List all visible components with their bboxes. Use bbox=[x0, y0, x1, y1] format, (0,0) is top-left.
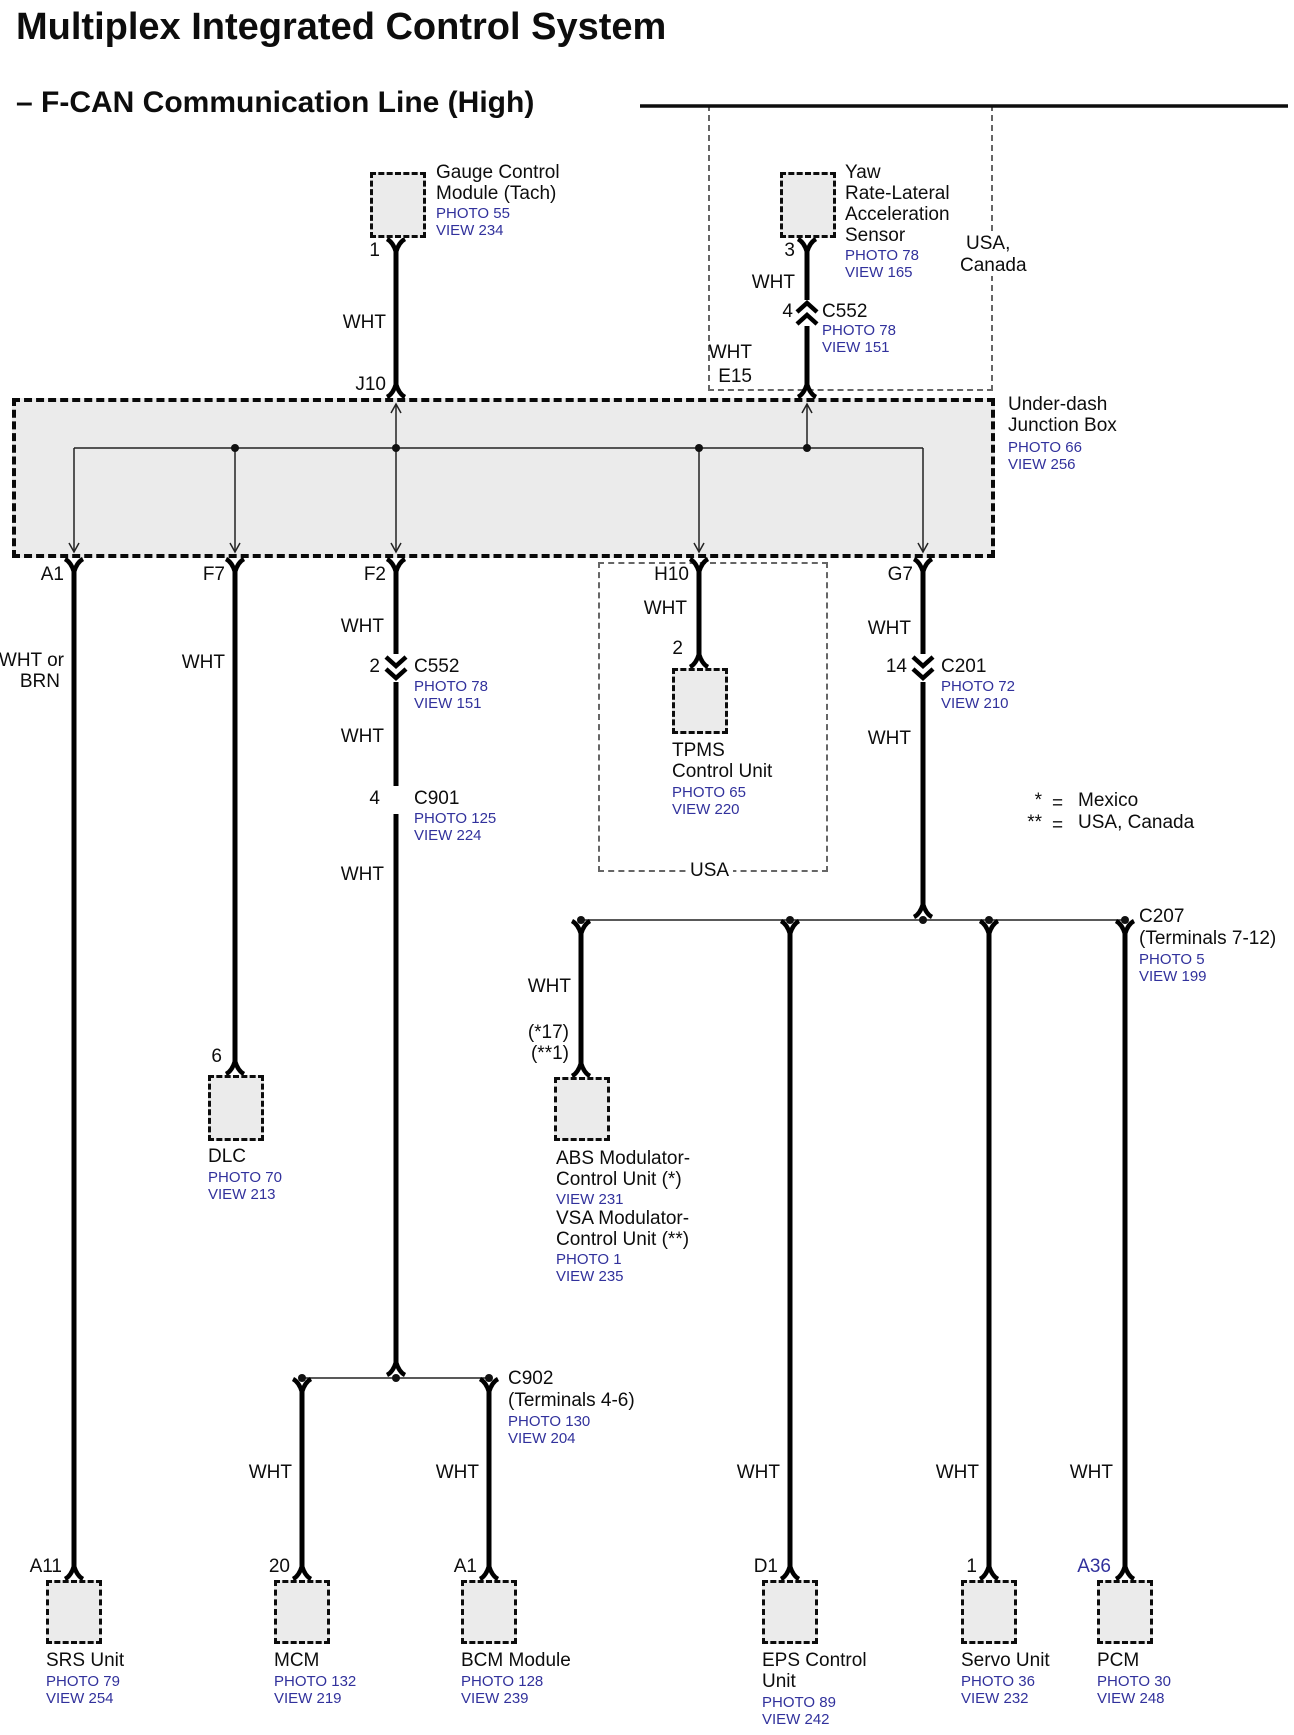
tpms-name-line1: TPMS bbox=[672, 740, 725, 761]
junction-internal-bus bbox=[74, 404, 923, 552]
yaw-name-line4: Sensor bbox=[845, 225, 905, 246]
gauge-photo-link[interactable]: PHOTO 55 bbox=[436, 206, 510, 222]
yaw-c552-pin: 4 bbox=[782, 301, 793, 322]
pcm-name: PCM bbox=[1097, 1650, 1139, 1671]
yaw-region-label-line2: Canada bbox=[956, 255, 1031, 276]
eps-wire-color: WHT bbox=[737, 1462, 780, 1483]
yaw-c552-name: C552 bbox=[822, 301, 867, 322]
tpms-wire-color: WHT bbox=[644, 598, 687, 619]
f2-c901-view-link[interactable]: VIEW 224 bbox=[414, 828, 482, 844]
servo-view-link[interactable]: VIEW 232 bbox=[961, 1691, 1029, 1707]
abs-wire-color: WHT bbox=[528, 976, 571, 997]
vsa-view-link[interactable]: VIEW 235 bbox=[556, 1269, 624, 1285]
f2-c552-pin: 2 bbox=[369, 656, 380, 677]
eps-control-unit-box bbox=[762, 1580, 818, 1644]
mcm-photo-link[interactable]: PHOTO 132 bbox=[274, 1674, 356, 1690]
srs-wire-color-line1: WHT or bbox=[0, 650, 64, 671]
tpms-control-unit-box bbox=[672, 668, 728, 734]
yaw-c552-view-link[interactable]: VIEW 151 bbox=[822, 340, 890, 356]
bcm-photo-link[interactable]: PHOTO 128 bbox=[461, 1674, 543, 1690]
yaw-photo-link[interactable]: PHOTO 78 bbox=[845, 248, 919, 264]
junction-pin-g7: G7 bbox=[888, 564, 913, 585]
tpms-name-line2: Control Unit bbox=[672, 761, 772, 782]
junction-pin-h10: H10 bbox=[654, 564, 689, 585]
eps-name-line2: Unit bbox=[762, 1671, 796, 1692]
abs-vsa-modulator-box bbox=[554, 1077, 610, 1141]
c207-terminals: (Terminals 7-12) bbox=[1139, 928, 1276, 949]
gauge-control-module-box bbox=[370, 172, 426, 238]
mcm-wire-color: WHT bbox=[249, 1462, 292, 1483]
servo-wire-color: WHT bbox=[936, 1462, 979, 1483]
legend-doublestar-value: USA, Canada bbox=[1078, 812, 1194, 833]
abs-pin-mexico: (*17) bbox=[528, 1022, 569, 1043]
legend-star: * bbox=[1035, 790, 1042, 811]
servo-pin: 1 bbox=[966, 1556, 977, 1577]
srs-name: SRS Unit bbox=[46, 1650, 124, 1671]
junction-box-name-line1: Under-dash bbox=[1008, 394, 1107, 415]
yaw-name-line2: Rate-Lateral bbox=[845, 183, 950, 204]
dlc-pin: 6 bbox=[211, 1046, 222, 1067]
tpms-view-link[interactable]: VIEW 220 bbox=[672, 802, 740, 818]
gauge-pin: 1 bbox=[369, 240, 380, 261]
yaw-rate-sensor-box bbox=[780, 172, 836, 238]
usa-region-label: USA bbox=[686, 860, 733, 881]
c207-bus bbox=[577, 916, 1129, 924]
junction-pin-j10: J10 bbox=[355, 374, 386, 395]
srs-photo-link[interactable]: PHOTO 79 bbox=[46, 1674, 120, 1690]
tpms-photo-link[interactable]: PHOTO 65 bbox=[672, 785, 746, 801]
f2-c552-view-link[interactable]: VIEW 151 bbox=[414, 696, 482, 712]
junction-pin-a1: A1 bbox=[41, 564, 64, 585]
junction-pin-e15: E15 bbox=[718, 366, 752, 387]
srs-pin: A11 bbox=[30, 1556, 62, 1577]
srs-unit-box bbox=[46, 1580, 102, 1644]
f2-wire3-color: WHT bbox=[341, 864, 384, 885]
g7-wire2-color: WHT bbox=[868, 728, 911, 749]
bcm-wire-color: WHT bbox=[436, 1462, 479, 1483]
f2-c901-name: C901 bbox=[414, 788, 459, 809]
g7-c201-name: C201 bbox=[941, 656, 986, 677]
f2-c552-name: C552 bbox=[414, 656, 459, 677]
abs-view-link[interactable]: VIEW 231 bbox=[556, 1192, 624, 1208]
c902-bus bbox=[298, 1374, 493, 1382]
f2-wire1-color: WHT bbox=[341, 616, 384, 637]
eps-pin: D1 bbox=[754, 1556, 778, 1577]
inline-connectors bbox=[386, 303, 933, 678]
c902-photo-link[interactable]: PHOTO 130 bbox=[508, 1414, 590, 1430]
yaw-pin: 3 bbox=[784, 240, 795, 261]
dlc-view-link[interactable]: VIEW 213 bbox=[208, 1187, 276, 1203]
bcm-pin: A1 bbox=[454, 1556, 477, 1577]
junction-box-name-line2: Junction Box bbox=[1008, 415, 1117, 436]
mcm-box bbox=[274, 1580, 330, 1644]
abs-name-line1: ABS Modulator- bbox=[556, 1148, 690, 1169]
servo-photo-link[interactable]: PHOTO 36 bbox=[961, 1674, 1035, 1690]
junction-internal-arrows bbox=[69, 404, 928, 552]
mcm-pin: 20 bbox=[269, 1556, 290, 1577]
c902-terminals: (Terminals 4-6) bbox=[508, 1390, 635, 1411]
pcm-view-link[interactable]: VIEW 248 bbox=[1097, 1691, 1165, 1707]
pcm-pin-link[interactable]: A36 bbox=[1077, 1556, 1111, 1577]
mcm-name: MCM bbox=[274, 1650, 319, 1671]
dlc-photo-link[interactable]: PHOTO 70 bbox=[208, 1170, 282, 1186]
gauge-view-link[interactable]: VIEW 234 bbox=[436, 223, 504, 239]
gauge-name-line2: Module (Tach) bbox=[436, 183, 556, 204]
yaw-name-line3: Acceleration bbox=[845, 204, 950, 225]
bcm-module-box bbox=[461, 1580, 517, 1644]
yaw-region-label-line1: USA, bbox=[962, 233, 1014, 254]
f2-c901-pin: 4 bbox=[369, 788, 380, 809]
dlc-wire-color: WHT bbox=[182, 652, 225, 673]
f2-c552-photo-link[interactable]: PHOTO 78 bbox=[414, 679, 488, 695]
c207-view-link[interactable]: VIEW 199 bbox=[1139, 969, 1207, 985]
yaw-view-link[interactable]: VIEW 165 bbox=[845, 265, 913, 281]
c902-view-link[interactable]: VIEW 204 bbox=[508, 1431, 576, 1447]
wiring-diagram-canvas: Multiplex Integrated Control System – F-… bbox=[0, 0, 1294, 1735]
yaw-wire1-color: WHT bbox=[752, 272, 795, 293]
junction-box-photo-link[interactable]: PHOTO 66 bbox=[1008, 440, 1082, 456]
servo-unit-box bbox=[961, 1580, 1017, 1644]
legend-star-value: Mexico bbox=[1078, 790, 1138, 811]
c207-photo-link[interactable]: PHOTO 5 bbox=[1139, 952, 1205, 968]
abs-name-line2: Control Unit (*) bbox=[556, 1169, 682, 1190]
vsa-photo-link[interactable]: PHOTO 1 bbox=[556, 1252, 622, 1268]
f2-wire2-color: WHT bbox=[341, 726, 384, 747]
gauge-name-line1: Gauge Control bbox=[436, 162, 560, 183]
pcm-wire-color: WHT bbox=[1070, 1462, 1113, 1483]
eps-view-link[interactable]: VIEW 242 bbox=[762, 1712, 830, 1728]
dlc-name: DLC bbox=[208, 1146, 246, 1167]
dlc-box bbox=[208, 1075, 264, 1141]
vsa-name-line1: VSA Modulator- bbox=[556, 1208, 689, 1229]
srs-wire-color-line2: BRN bbox=[20, 671, 60, 692]
junction-pin-f7: F7 bbox=[203, 564, 225, 585]
junction-box-view-link[interactable]: VIEW 256 bbox=[1008, 457, 1076, 473]
g7-c201-photo-link[interactable]: PHOTO 72 bbox=[941, 679, 1015, 695]
bcm-name: BCM Module bbox=[461, 1650, 571, 1671]
g7-c201-view-link[interactable]: VIEW 210 bbox=[941, 696, 1009, 712]
c207-name: C207 bbox=[1139, 906, 1184, 927]
tpms-pin: 2 bbox=[672, 638, 683, 659]
legend-doublestar: ** bbox=[1027, 812, 1042, 833]
gauge-wire-color: WHT bbox=[343, 312, 386, 333]
legend-star-equals: = bbox=[1052, 793, 1063, 814]
pcm-box bbox=[1097, 1580, 1153, 1644]
c902-name: C902 bbox=[508, 1368, 553, 1389]
junction-pin-f2: F2 bbox=[364, 564, 386, 585]
eps-photo-link[interactable]: PHOTO 89 bbox=[762, 1695, 836, 1711]
vsa-name-line2: Control Unit (**) bbox=[556, 1229, 689, 1250]
legend-doublestar-equals: = bbox=[1052, 815, 1063, 836]
servo-name: Servo Unit bbox=[961, 1650, 1050, 1671]
g7-c201-pin: 14 bbox=[886, 656, 907, 677]
pcm-photo-link[interactable]: PHOTO 30 bbox=[1097, 1674, 1171, 1690]
abs-pin-usa-canada: (**1) bbox=[531, 1043, 569, 1064]
mcm-view-link[interactable]: VIEW 219 bbox=[274, 1691, 342, 1707]
eps-name-line1: EPS Control bbox=[762, 1650, 867, 1671]
bcm-view-link[interactable]: VIEW 239 bbox=[461, 1691, 529, 1707]
g7-wire1-color: WHT bbox=[868, 618, 911, 639]
yaw-c552-photo-link[interactable]: PHOTO 78 bbox=[822, 323, 896, 339]
srs-view-link[interactable]: VIEW 254 bbox=[46, 1691, 114, 1707]
yaw-name-line1: Yaw bbox=[845, 162, 881, 183]
f2-c901-photo-link[interactable]: PHOTO 125 bbox=[414, 811, 496, 827]
yaw-wire2-color: WHT bbox=[709, 342, 752, 363]
